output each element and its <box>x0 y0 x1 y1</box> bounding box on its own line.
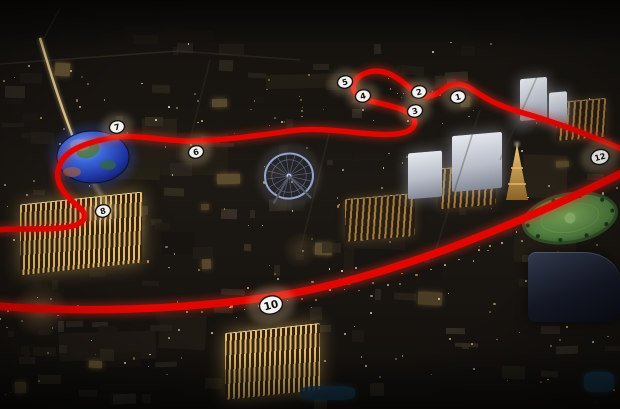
city-street <box>190 60 210 140</box>
turn-marker-8: 8 <box>84 195 121 228</box>
circuit-map: 123456781012 <box>0 0 620 409</box>
city-street <box>178 51 300 60</box>
track-overlay: 123456781012 <box>0 0 620 409</box>
city-street <box>44 8 60 38</box>
high-roller-wheel <box>253 140 325 212</box>
city-street <box>0 51 178 64</box>
eiffel-tower-replica <box>506 142 528 200</box>
